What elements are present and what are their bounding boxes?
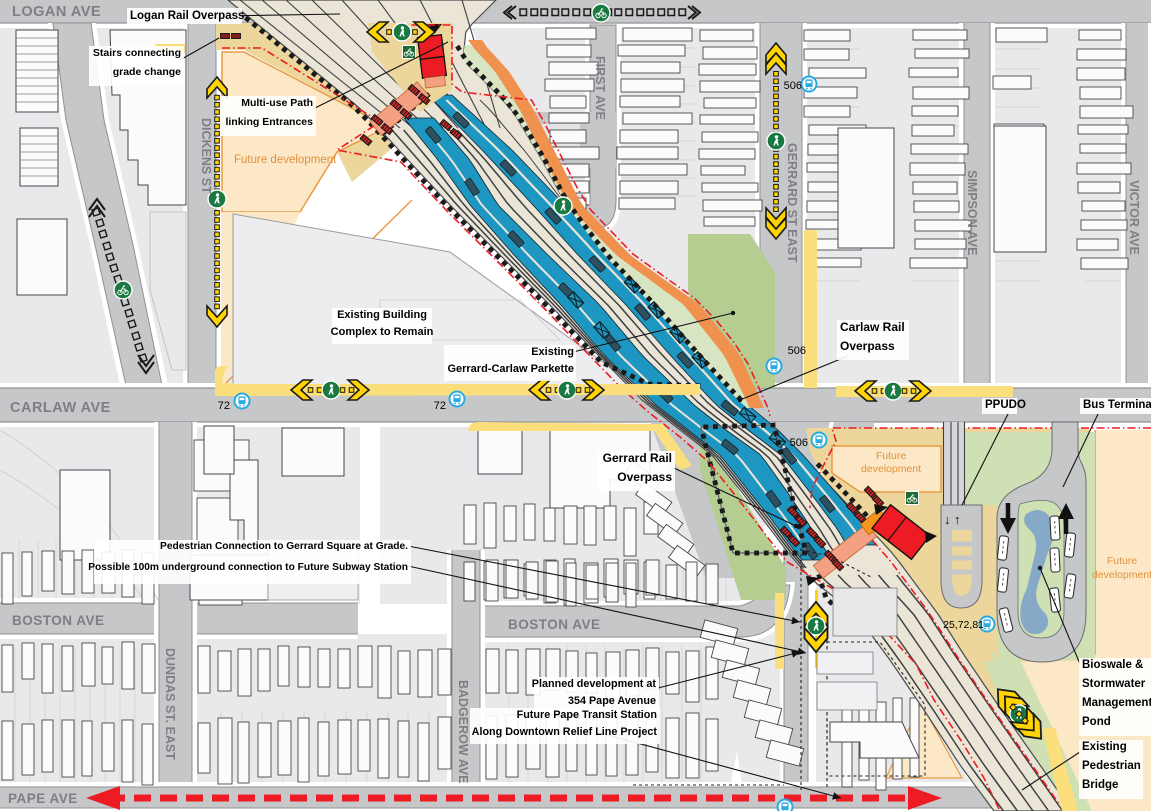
svg-text:DICKENS ST: DICKENS ST [199,118,213,194]
svg-text:Along Downtown Relief Line Pro: Along Downtown Relief Line Project [472,726,658,738]
svg-text:Bus Terminal: Bus Terminal [1083,399,1151,411]
svg-text:DUNDAS ST. EAST: DUNDAS ST. EAST [163,648,177,760]
svg-text:Bioswale &: Bioswale & [1082,659,1143,671]
svg-text:CARLAW AVE: CARLAW AVE [10,400,111,416]
svg-text:Pedestrian: Pedestrian [1082,760,1141,772]
svg-text:development: development [1092,569,1151,581]
svg-text:Future development: Future development [234,154,337,166]
svg-text:Carlaw Rail: Carlaw Rail [840,320,905,334]
svg-text:Gerrard Rail: Gerrard Rail [603,451,672,465]
svg-text:Complex to Remain: Complex to Remain [331,326,434,338]
svg-text:LOGAN AVE: LOGAN AVE [12,4,101,20]
svg-text:72: 72 [434,400,446,412]
svg-text:BOSTON AVE: BOSTON AVE [508,617,601,632]
svg-text:Pond: Pond [1082,716,1111,728]
svg-text:Bridge: Bridge [1082,779,1118,791]
svg-text:↑: ↑ [954,512,961,527]
svg-text:25,72,81: 25,72,81 [943,619,984,631]
svg-text:Stormwater: Stormwater [1082,678,1146,690]
svg-text:development: development [861,463,921,475]
svg-text:72: 72 [218,400,230,412]
svg-text:506: 506 [784,80,802,92]
svg-text:Stairs connecting: Stairs connecting [93,47,181,59]
svg-text:Overpass: Overpass [840,339,895,353]
svg-text:Future: Future [1107,555,1138,567]
svg-text:PAPE AVE: PAPE AVE [8,791,78,806]
svg-text:354 Pape Avenue: 354 Pape Avenue [568,695,656,707]
svg-text:Overpass: Overpass [617,470,672,484]
svg-text:GERRARD ST EAST: GERRARD ST EAST [785,143,799,263]
svg-text:Existing: Existing [1082,741,1127,753]
svg-text:VICTOR AVE: VICTOR AVE [1127,180,1141,255]
svg-text:SIMPSON AVE: SIMPSON AVE [965,170,979,255]
svg-text:Logan Rail Overpass: Logan Rail Overpass [130,10,244,22]
svg-text:Management: Management [1082,697,1151,709]
svg-text:Existing: Existing [531,346,574,358]
svg-text:grade change: grade change [113,66,181,78]
svg-text:Future Pape Transit Station: Future Pape Transit Station [517,709,657,721]
svg-text:linking Entrances: linking Entrances [225,116,313,128]
svg-text:Existing Building: Existing Building [337,309,427,321]
svg-text:Planned development at: Planned development at [532,678,657,690]
svg-text:Future: Future [876,450,907,462]
svg-text:Multi-use Path: Multi-use Path [241,97,313,109]
svg-text:506: 506 [790,437,808,449]
svg-text:Pedestrian Connection to Gerra: Pedestrian Connection to Gerrard Square … [160,541,408,552]
svg-text:BOSTON AVE: BOSTON AVE [12,613,105,628]
svg-text:506: 506 [788,345,806,357]
svg-text:↓: ↓ [944,512,951,527]
svg-text:Possible 100m underground conn: Possible 100m underground connection to … [88,562,408,573]
svg-text:PPUDO: PPUDO [985,399,1026,411]
svg-text:BADGEROW AVE: BADGEROW AVE [456,680,470,783]
svg-text:FIRST AVE: FIRST AVE [593,56,607,120]
svg-text:Gerrard-Carlaw Parkette: Gerrard-Carlaw Parkette [447,363,574,375]
